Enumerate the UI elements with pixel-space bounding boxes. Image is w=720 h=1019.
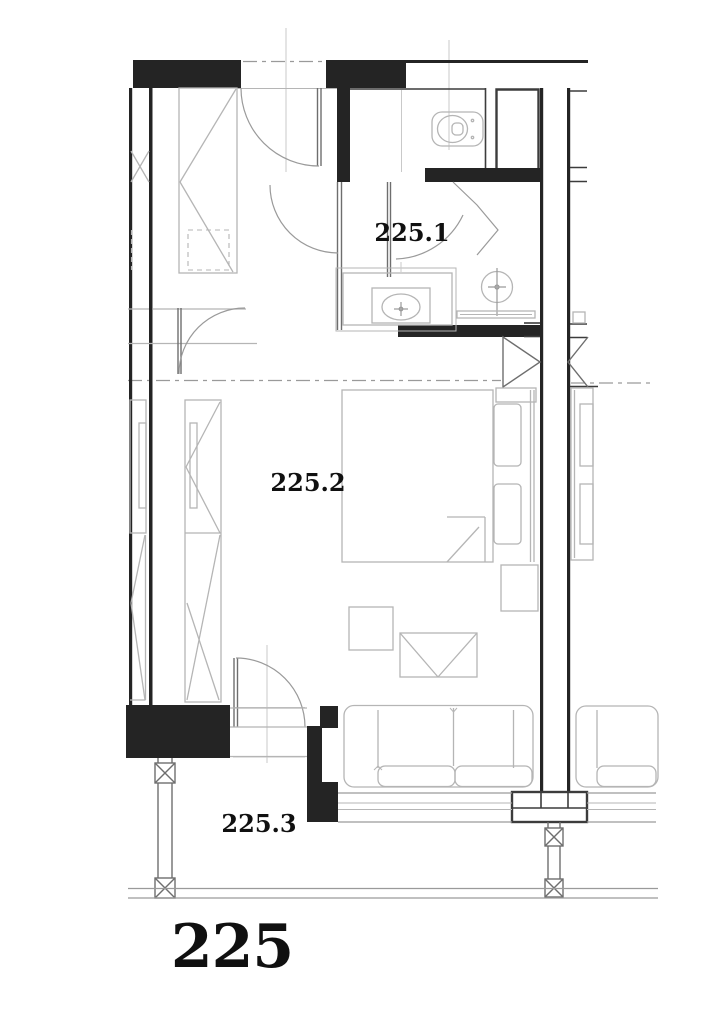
door-swing-triangles	[503, 337, 588, 387]
neighbor-left-sliver	[130, 151, 149, 700]
toilet	[432, 112, 483, 146]
seat-cushion	[378, 766, 455, 787]
duct-niche	[497, 90, 539, 169]
pillow	[494, 484, 521, 544]
south-pier-shaft	[307, 726, 322, 790]
shower-door-chevron	[453, 182, 498, 255]
neighbor-sofa	[576, 706, 658, 787]
wardrobe	[185, 400, 221, 702]
neighbor-shower-threshold	[573, 312, 585, 323]
shower-divider-wall	[425, 168, 540, 182]
balcony-door-arc	[236, 658, 305, 727]
shower	[457, 268, 585, 323]
party-wall-right-a	[540, 88, 543, 792]
party-wall-right-b	[567, 88, 570, 792]
balcony-post-right	[545, 822, 563, 897]
room-2-label: 225.2	[270, 468, 345, 497]
unit-label: 225	[171, 912, 293, 982]
nightstand	[501, 565, 538, 611]
blanket-fold	[447, 527, 479, 562]
top-wall-left	[133, 60, 241, 88]
bathroom-door-arc	[270, 185, 338, 253]
south-pier-foot	[307, 782, 338, 822]
swing-triangle-right	[568, 337, 588, 387]
southeast-wall-block	[512, 792, 587, 822]
ottoman	[400, 633, 477, 677]
entry-stub-wall	[337, 88, 350, 182]
closet-dashed-box	[188, 230, 229, 270]
room-1-label: 225.1	[374, 218, 449, 247]
connecting-door	[128, 308, 257, 374]
balcony-post-left	[155, 758, 175, 898]
top-wall-line	[406, 60, 588, 63]
entry-door-arc	[241, 88, 319, 166]
connecting-door-arc	[179, 308, 245, 374]
washbasin	[336, 262, 456, 331]
side-table	[349, 607, 393, 650]
closet	[179, 88, 237, 273]
seat-cushion	[455, 766, 532, 787]
swing-triangle-left	[503, 337, 540, 387]
top-wall-mid	[326, 60, 406, 88]
room-3-label: 225.3	[221, 809, 296, 838]
entry-door	[241, 88, 321, 166]
party-wall-left-b	[149, 88, 153, 705]
south-pier-top	[320, 706, 338, 728]
southwest-wall-block	[126, 705, 230, 758]
south-window	[338, 793, 656, 822]
sofa	[344, 706, 533, 788]
balcony	[128, 758, 658, 898]
neighbor-right-sliver	[571, 388, 658, 787]
floor-plan: 225.1 225.2 225.3 225	[0, 0, 720, 1019]
pillow	[494, 404, 521, 466]
bathroom-partition	[338, 182, 342, 330]
floor-plan-canvas: 225.1 225.2 225.3 225	[0, 0, 720, 1019]
walls	[126, 60, 588, 822]
bed	[342, 388, 536, 562]
wall-joint-ticks	[524, 91, 598, 387]
